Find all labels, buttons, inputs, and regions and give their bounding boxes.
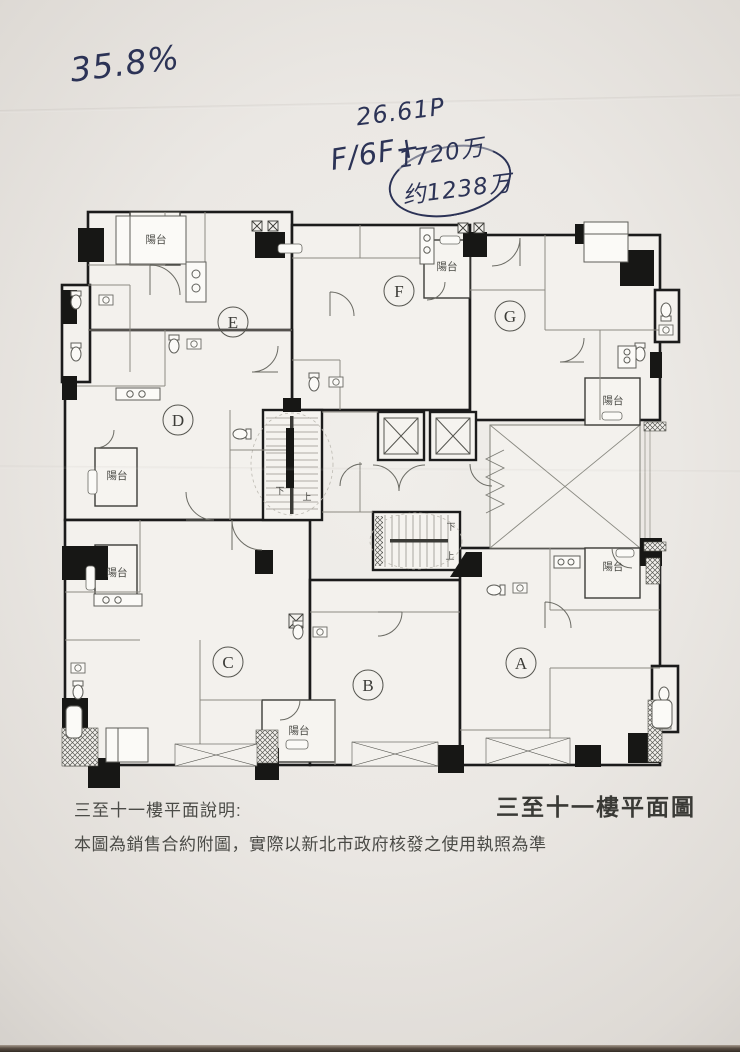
unit-letter-b: B — [362, 676, 373, 695]
stair-rail-right — [390, 539, 448, 543]
balcony-label-f: 陽台 — [437, 260, 458, 273]
stair-up-label-right: 上 — [445, 551, 454, 561]
balcony-label-c: 陽台 — [107, 566, 128, 579]
balcony-label-a: 陽台 — [603, 560, 624, 573]
stair-down-label-left: 下 — [275, 486, 284, 496]
stair-hatch-strip — [375, 516, 383, 566]
unit-letter-a: A — [515, 654, 528, 673]
stair-up-label-left: 上 — [302, 492, 311, 502]
note-title: 三至十一樓平面說明: — [74, 796, 242, 821]
balcony-label-d: 陽台 — [107, 469, 128, 482]
balcony-label-b: 陽台 — [289, 724, 310, 737]
note-body: 本圖為銷售合約附圖，實際以新北市政府核發之使用執照為準 — [74, 830, 547, 855]
plan-title: 三至十一樓平面圖 — [496, 788, 696, 822]
unit-letter-g: G — [504, 307, 516, 326]
unit-letter-c: C — [222, 653, 233, 672]
unit-letter-f: F — [394, 282, 403, 301]
photo-paper-background: E F G D C B A 陽台 陽台 陽台 陽台 陽台 陽台 — [0, 0, 740, 1052]
balcony-label-e: 陽台 — [146, 233, 167, 246]
balcony-label-g: 陽台 — [603, 394, 624, 407]
void-railing-lines — [645, 430, 650, 545]
unit-letter-e: E — [228, 313, 238, 332]
unit-letter-d: D — [172, 411, 184, 430]
photo-bottom-edge — [0, 1045, 740, 1052]
stair-down-label-right: 下 — [446, 522, 455, 532]
